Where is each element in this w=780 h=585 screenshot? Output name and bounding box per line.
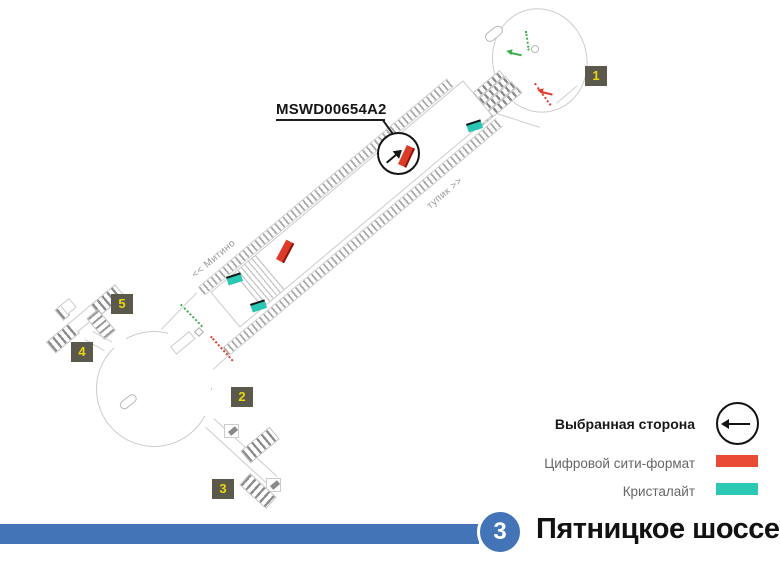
lift-symbol bbox=[228, 426, 238, 436]
stairs-exit-2 bbox=[240, 427, 279, 464]
legend-crystalite-swatch bbox=[716, 483, 758, 495]
lift-symbol bbox=[270, 480, 280, 490]
legend-selected-side-label: Выбранная сторона bbox=[498, 416, 695, 432]
line-color-bar bbox=[0, 524, 479, 544]
exit-number-badge-5: 5 bbox=[111, 294, 133, 314]
exit-number-badge-3: 3 bbox=[212, 479, 234, 499]
exit-number-badge-2: 2 bbox=[231, 387, 253, 407]
legend-digital-label: Цифровой сити-формат bbox=[498, 456, 695, 471]
legend-crystalite-label: Кристалайт bbox=[498, 484, 695, 499]
station-title: Пятницкое шоссе bbox=[536, 513, 780, 546]
lift-box bbox=[224, 424, 239, 438]
funnel-wall bbox=[161, 292, 197, 329]
exit-number-badge-4: 4 bbox=[71, 342, 93, 362]
entry-path-dotted bbox=[180, 304, 203, 328]
station-scheme: 1 << Митино тупик >> MSWD00654A2 bbox=[0, 0, 780, 585]
selected-surface-id: MSWD00654A2 bbox=[276, 101, 387, 118]
exit-number-badge-1: 1 bbox=[585, 66, 607, 86]
path-node bbox=[531, 45, 539, 53]
callout-underline bbox=[276, 119, 385, 121]
line-number-badge: 3 bbox=[477, 509, 523, 555]
legend-digital-swatch bbox=[716, 455, 758, 467]
